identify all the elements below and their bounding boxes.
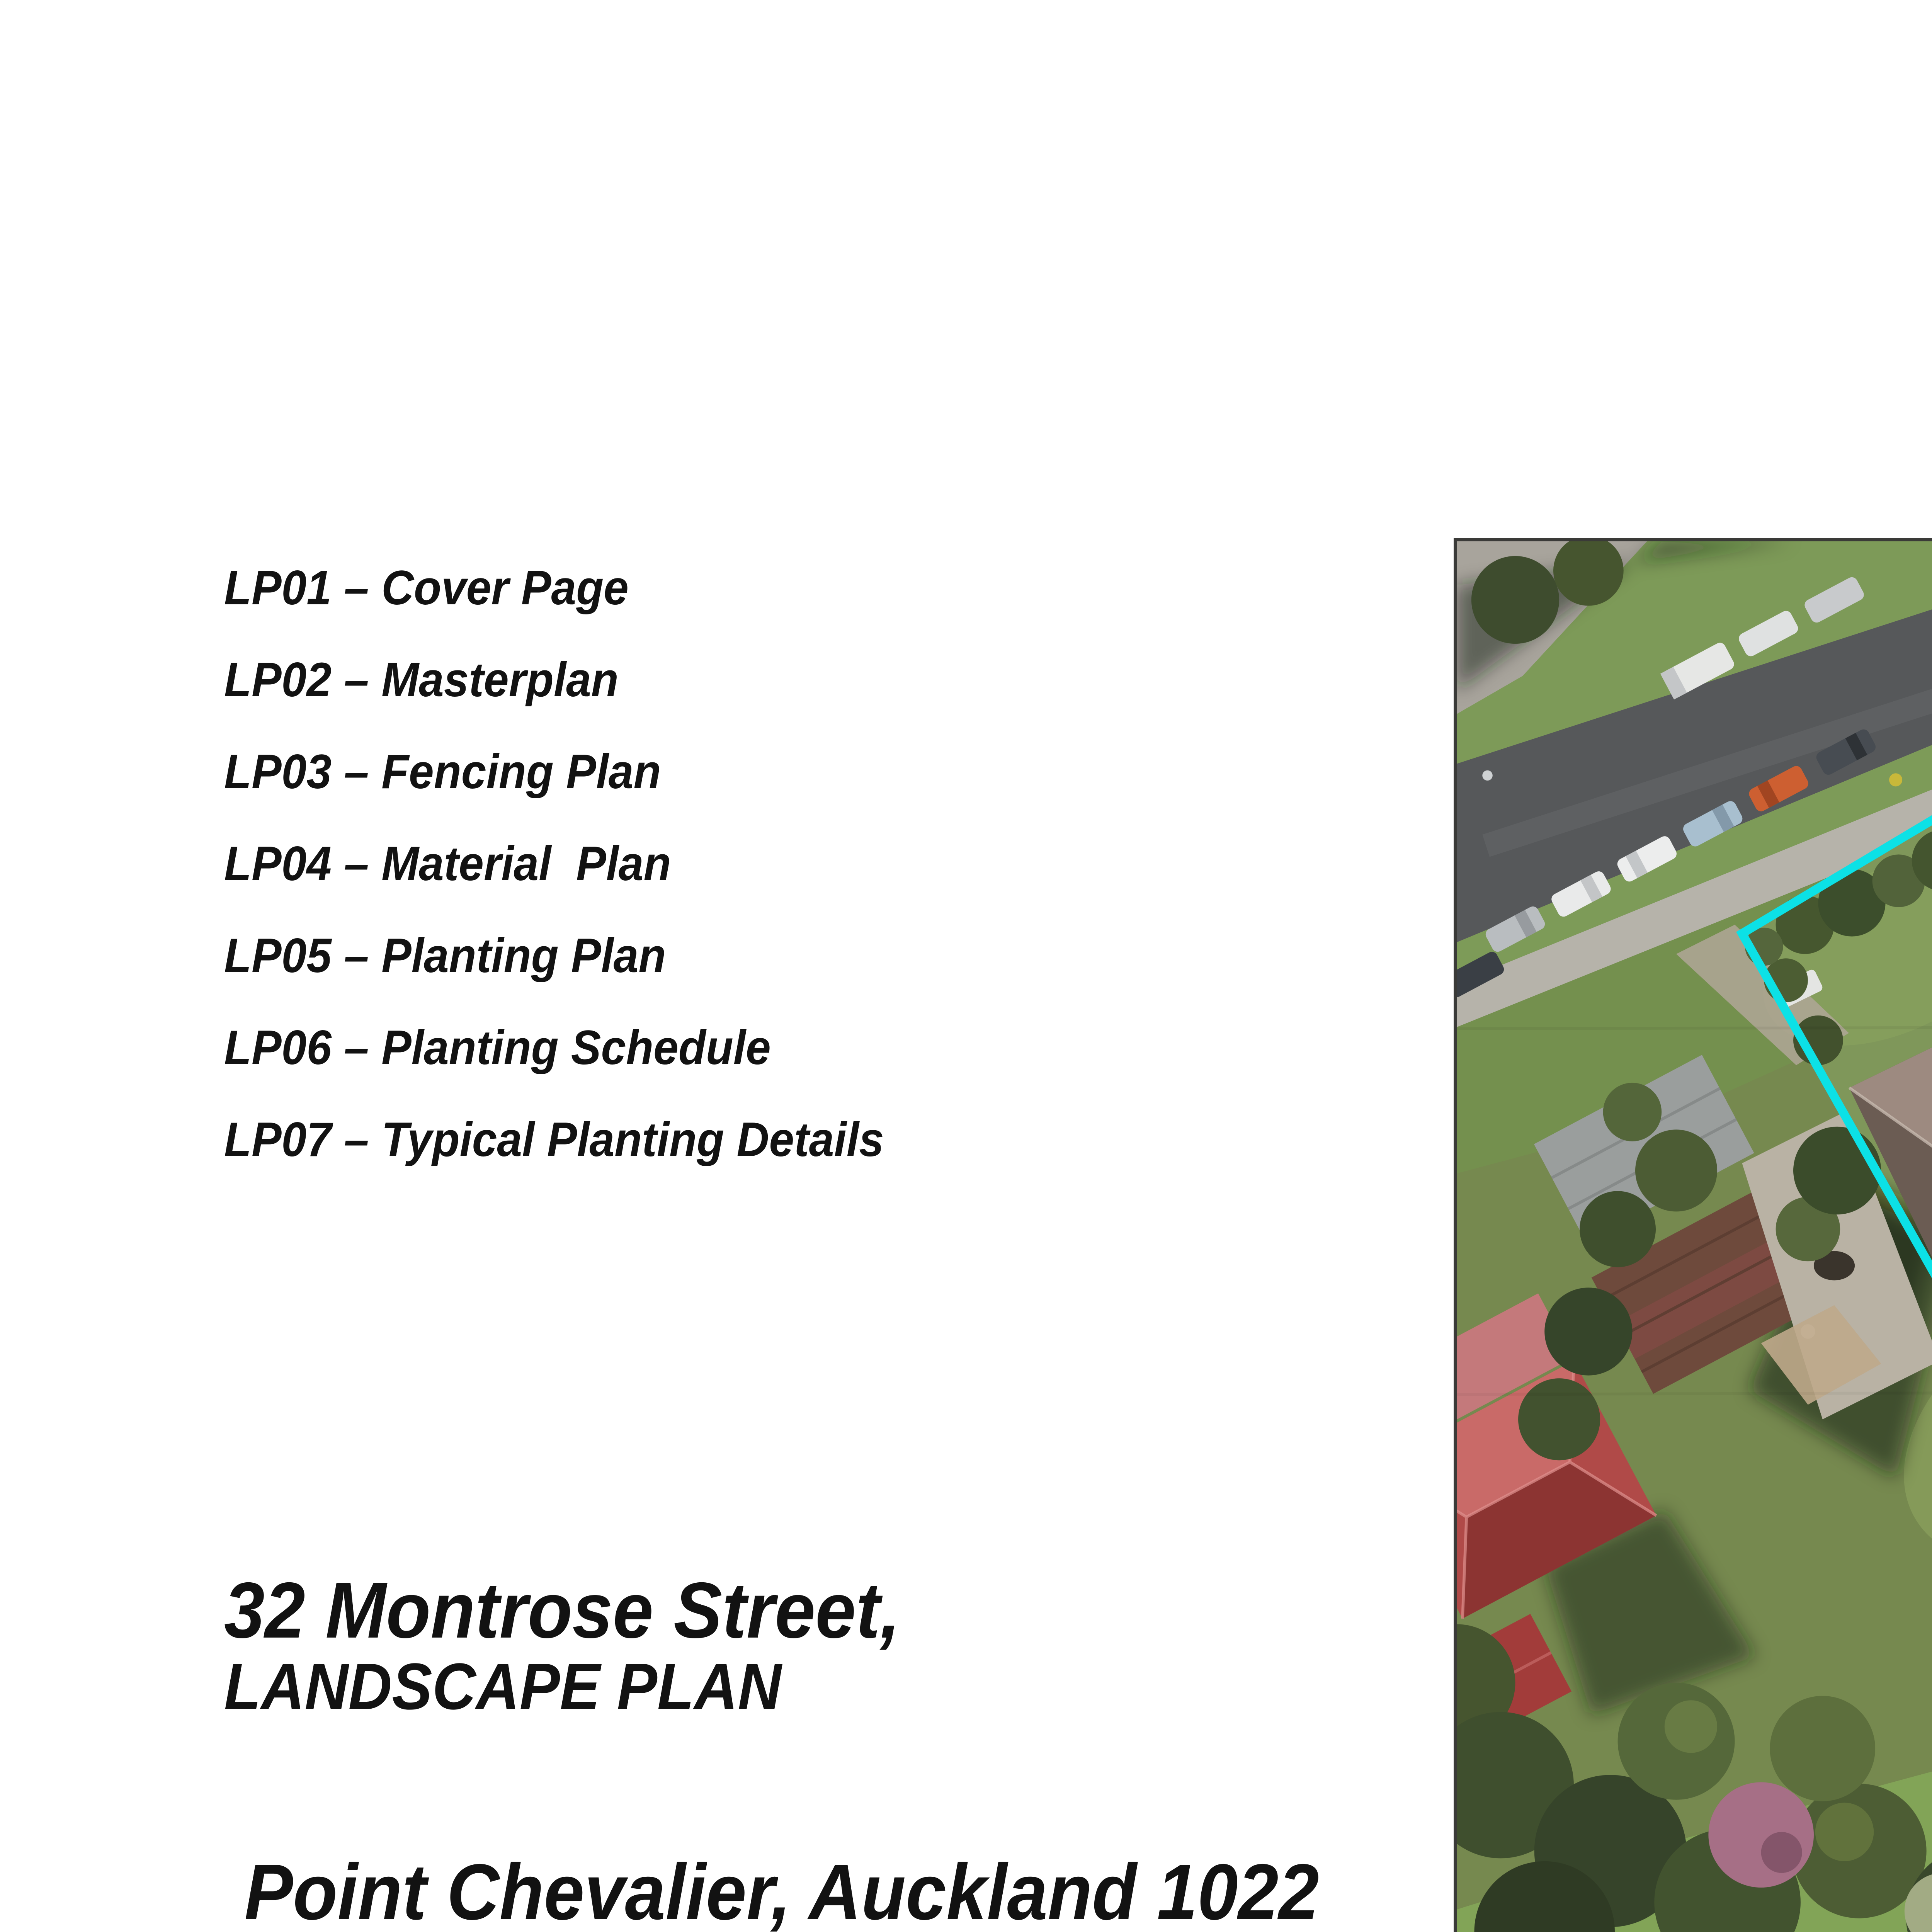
aerial-photo [1457, 541, 1932, 1932]
pink-tree-small [1708, 1782, 1814, 1888]
sheet-index-item-lp02: LP02 – Masterplan [224, 641, 884, 719]
aerial-photo-frame [1454, 538, 1932, 1932]
sheet-index-item-lp01: LP01 – Cover Page [224, 549, 884, 627]
sheet-index-item-lp06: LP06 – Planting Schedule [224, 1009, 884, 1087]
sheet-index: LP01 – Cover Page LP02 – Masterplan LP03… [224, 535, 884, 1186]
site-address-line-1: 32 Montrose Street, [224, 1563, 1319, 1657]
sheet-index-item-lp05: LP05 – Planting Plan [224, 917, 884, 995]
sheet-index-item-lp04: LP04 – Material Plan [224, 825, 884, 903]
page-root: { "page": { "kind": "Landscape plan cove… [0, 0, 1932, 1932]
contact-block: 2026/04/02 info@altland.co.nz contact:02… [224, 1870, 499, 1932]
sheet-index-item-lp03: LP03 – Fencing Plan [224, 733, 884, 811]
sheet-index-item-lp07: LP07 – Typical Planting Details [224, 1101, 884, 1179]
plan-title: LANDSCAPE PLAN [224, 1648, 781, 1725]
